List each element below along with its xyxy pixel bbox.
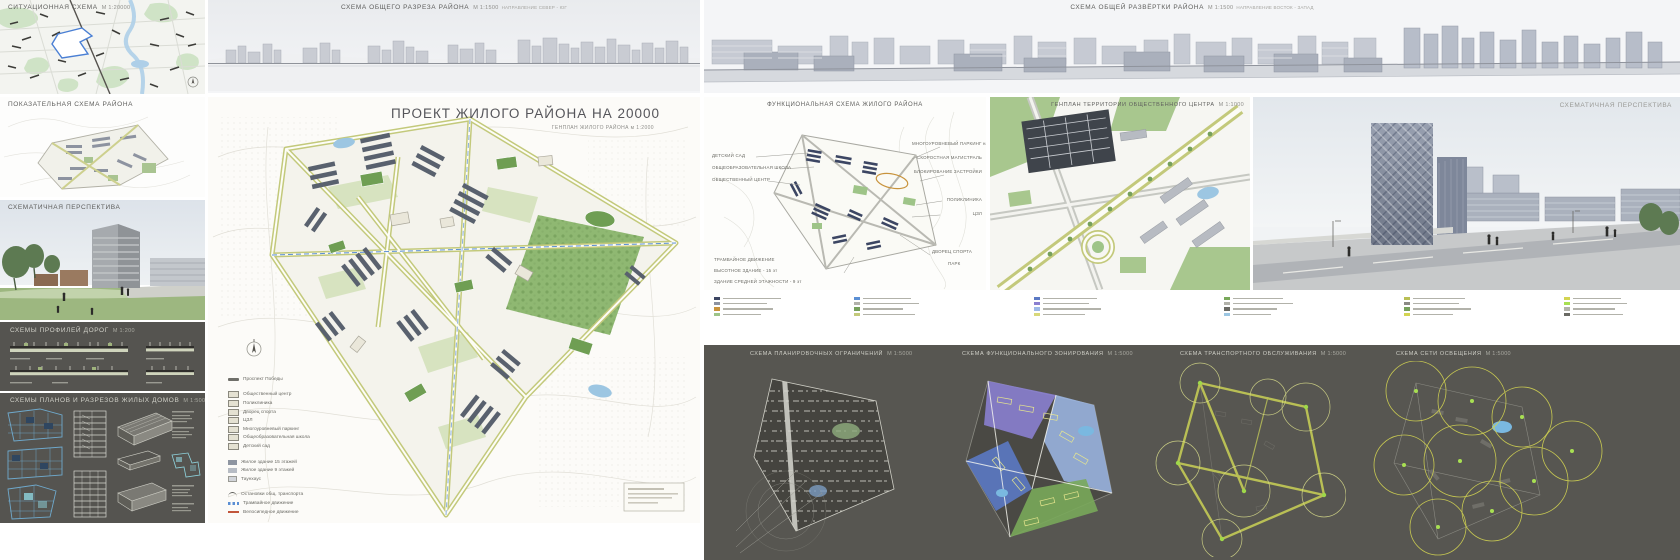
legend-item: Таунхаус bbox=[228, 475, 310, 484]
general-elevation-scale: м 1:1500 bbox=[1208, 5, 1233, 11]
public-center-scale: м 1:1000 bbox=[1219, 102, 1244, 108]
legend-group bbox=[854, 296, 919, 316]
road-chip bbox=[228, 378, 239, 382]
functional-label: ОБЩЕСТВЕННЫЙ ЦЕНТР bbox=[712, 177, 770, 182]
panel-title: СХЕМЫ ПРОФИЛЕЙ ДОРОГм 1:200 bbox=[10, 327, 135, 334]
zoning-graphic bbox=[936, 361, 1132, 557]
panel-title: СХЕМА ОБЩЕГО РАЗРЕЗА РАЙОНАм 1:1500напра… bbox=[208, 4, 700, 11]
presentation-board: СИТУАЦИОННАЯ СХЕМАм 1:20000 bbox=[0, 0, 1680, 560]
legend-item: Дворец спорта bbox=[228, 408, 310, 417]
house-plans-scale: м 1:500 bbox=[183, 398, 205, 404]
north-arrow-icon bbox=[247, 339, 261, 356]
residential-9-chip bbox=[228, 468, 237, 473]
legend-group bbox=[1224, 296, 1293, 316]
panel-title: СХЕМА ТРАНСПОРТНОГО ОБСЛУЖИВАНИЯм 1:5000 bbox=[1180, 351, 1346, 357]
legend-item: Жилое здание 9 этажей bbox=[228, 466, 310, 475]
functional-label: ДЕТСКИЙ САД bbox=[712, 153, 745, 158]
functional-label: ЦЗЛ bbox=[973, 211, 982, 216]
panel-perspective-2: СХЕМАТИЧНАЯ ПЕРСПЕКТИВА bbox=[1253, 97, 1680, 290]
public-building-chip bbox=[228, 391, 239, 398]
tram-line-chip bbox=[228, 502, 239, 504]
district-overview-graphic bbox=[0, 97, 205, 197]
legend-item: ЦЗЛ bbox=[228, 416, 310, 425]
panel-general-section: СХЕМА ОБЩЕГО РАЗРЕЗА РАЙОНАм 1:1500напра… bbox=[208, 0, 700, 93]
public-building-chip bbox=[228, 409, 239, 416]
legend-item: Многоуровневый паркинг bbox=[228, 425, 310, 434]
panel-title: ПОКАЗАТЕЛЬНАЯ СХЕМА РАЙОНА bbox=[8, 101, 133, 108]
legend-item: Жилое здание 15 этажей bbox=[228, 458, 310, 467]
legend-item: Велосипедное движение bbox=[228, 508, 310, 517]
panel-title: ФУНКЦИОНАЛЬНАЯ СХЕМА ЖИЛОГО РАЙОНА bbox=[704, 102, 986, 108]
public-building-chip bbox=[228, 434, 239, 441]
legend-group bbox=[1404, 296, 1471, 316]
district-overview-title: ПОКАЗАТЕЛЬНАЯ СХЕМА РАЙОНА bbox=[8, 101, 133, 108]
zoning-title: СХЕМА ФУНКЦИОНАЛЬНОГО ЗОНИРОВАНИЯ bbox=[962, 351, 1104, 357]
legend-item: Проспект Победы bbox=[228, 375, 310, 384]
general-section-scale: м 1:1500 bbox=[473, 5, 498, 11]
public-building-chip bbox=[228, 443, 239, 450]
public-building-chip bbox=[228, 400, 239, 407]
zoning-scale: м 1:5000 bbox=[1108, 351, 1133, 357]
title-stamp bbox=[624, 483, 684, 511]
panel-masterplan: ПРОЕКТ ЖИЛОГО РАЙОНА НА 20000 ГЕНПЛАН ЖИ… bbox=[208, 97, 700, 523]
masterplan-subtitle: ГЕНПЛАН ЖИЛОГО РАЙОНА м 1:2000 bbox=[552, 125, 654, 131]
masterplan-title: ПРОЕКТ ЖИЛОГО РАЙОНА НА 20000 bbox=[391, 106, 660, 121]
perspective-2-graphic bbox=[1253, 97, 1680, 290]
general-elevation-note: направление Восток - Запад bbox=[1236, 5, 1313, 10]
situational-map-graphic bbox=[0, 0, 205, 94]
legend-item: Общеобразовательная школа bbox=[228, 434, 310, 443]
legend-item: Трамвайное движение bbox=[228, 499, 310, 508]
panel-title: СХЕМАТИЧНАЯ ПЕРСПЕКТИВА bbox=[1560, 102, 1672, 109]
public-center-title: ГЕНПЛАН ТЕРРИТОРИИ ОБЩЕСТВЕННОГО ЦЕНТРА bbox=[1051, 102, 1215, 108]
situational-title: СИТУАЦИОННАЯ СХЕМА bbox=[8, 4, 98, 11]
public-center-plan-graphic bbox=[990, 97, 1250, 290]
tower-building bbox=[1371, 123, 1433, 245]
functional-label: ЗДАНИЕ СРЕДНЕЙ ЭТАЖНОСТИ - 9 эт bbox=[714, 279, 802, 284]
transport-graphic bbox=[1146, 361, 1346, 557]
analysis-band: СХЕМА ПЛАНИРОВОЧНЫХ ОГРАНИЧЕНИЙм 1:5000 bbox=[704, 345, 1680, 560]
general-section-note: направление Север - Юг bbox=[502, 5, 567, 10]
functional-label: ДВОРЕЦ СПОРТА bbox=[932, 249, 972, 254]
panel-title: СХЕМА ОБЩЕЙ РАЗВЁРТКИ РАЙОНАм 1:1500напр… bbox=[704, 4, 1680, 11]
general-section-graphic bbox=[208, 0, 700, 93]
house-plans-title: СХЕМЫ ПЛАНОВ И РАЗРЕЗОВ ЖИЛЫХ ДОМОВ bbox=[10, 397, 179, 404]
general-elevation-graphic bbox=[704, 0, 1680, 93]
panel-title: СИТУАЦИОННАЯ СХЕМАм 1:20000 bbox=[8, 4, 130, 11]
legend-item: Общественный центр bbox=[228, 391, 310, 400]
panel-title: СХЕМА ПЛАНИРОВОЧНЫХ ОГРАНИЧЕНИЙм 1:5000 bbox=[750, 351, 912, 357]
functional-label: СКОРОСТНАЯ МАГИСТРАЛЬ bbox=[917, 155, 982, 160]
lighting-scale: м 1:5000 bbox=[1486, 351, 1511, 357]
general-section-title: СХЕМА ОБЩЕГО РАЗРЕЗА РАЙОНА bbox=[341, 4, 469, 11]
panel-house-plans: СХЕМЫ ПЛАНОВ И РАЗРЕЗОВ ЖИЛЫХ ДОМОВм 1:5… bbox=[0, 393, 205, 523]
constraints-title: СХЕМА ПЛАНИРОВОЧНЫХ ОГРАНИЧЕНИЙ bbox=[750, 351, 883, 357]
legend-item: Остановки общ. транспорта bbox=[228, 491, 310, 500]
panel-perspective-1: СХЕМАТИЧНАЯ ПЕРСПЕКТИВА bbox=[0, 200, 205, 320]
panel-general-elevation: СХЕМА ОБЩЕЙ РАЗВЁРТКИ РАЙОНАм 1:1500напр… bbox=[704, 0, 1680, 93]
constraints-graphic bbox=[726, 361, 916, 557]
legend-item: Поликлиника bbox=[228, 399, 310, 408]
legend-strip bbox=[704, 294, 1680, 316]
road-profiles-scale: м 1:200 bbox=[113, 328, 135, 334]
functional-label: БЛОКИРОВАНИЕ ЗАСТРОЙКИ bbox=[914, 169, 982, 174]
panel-situational-map: СИТУАЦИОННАЯ СХЕМАм 1:20000 bbox=[0, 0, 205, 94]
public-building-chip bbox=[228, 426, 239, 433]
perspective-1-graphic bbox=[0, 200, 205, 320]
functional-label: ПАРК bbox=[948, 261, 960, 266]
panel-district-overview: ПОКАЗАТЕЛЬНАЯ СХЕМА РАЙОНА bbox=[0, 97, 205, 197]
house-plans-graphic bbox=[0, 393, 205, 523]
perspective-2-title: СХЕМАТИЧНАЯ ПЕРСПЕКТИВА bbox=[1560, 102, 1672, 109]
legend-group bbox=[714, 296, 781, 316]
functional-label: ОБЩЕОБРАЗОВАТЕЛЬНАЯ ШКОЛА bbox=[712, 165, 791, 170]
panel-public-center-plan: ГЕНПЛАН ТЕРРИТОРИИ ОБЩЕСТВЕННОГО ЦЕНТРАм… bbox=[990, 97, 1250, 290]
legend-group bbox=[1034, 296, 1101, 316]
general-elevation-title: СХЕМА ОБЩЕЙ РАЗВЁРТКИ РАЙОНА bbox=[1070, 4, 1204, 11]
masterplan-legend: Проспект Победы Общественный центр Полик… bbox=[228, 375, 310, 523]
lighting-title: СХЕМА СЕТИ ОСВЕЩЕНИЯ bbox=[1396, 351, 1482, 357]
transport-scale: м 1:5000 bbox=[1321, 351, 1346, 357]
panel-title: ГЕНПЛАН ТЕРРИТОРИИ ОБЩЕСТВЕННОГО ЦЕНТРАм… bbox=[1051, 102, 1244, 108]
public-building-chip bbox=[228, 417, 239, 424]
bike-line-chip bbox=[228, 511, 239, 513]
townhouse-chip bbox=[228, 476, 237, 482]
perspective-1-title: СХЕМАТИЧНАЯ ПЕРСПЕКТИВА bbox=[8, 204, 120, 211]
functional-label: МНОГОУРОВНЕВЫЙ ПАРКИНГ на 800 мест bbox=[912, 141, 982, 146]
constraints-scale: м 1:5000 bbox=[887, 351, 912, 357]
situational-scale: м 1:20000 bbox=[102, 5, 131, 11]
lighting-graphic bbox=[1352, 361, 1612, 557]
residential-15-chip bbox=[228, 460, 237, 465]
panel-functional-scheme: ФУНКЦИОНАЛЬНАЯ СХЕМА ЖИЛОГО РАЙОНА bbox=[704, 97, 986, 290]
functional-label: ПОЛИКЛИНИКА bbox=[947, 197, 982, 202]
legend-item: Детский сад bbox=[228, 442, 310, 451]
transit-stop-chip bbox=[228, 492, 237, 497]
functional-label: ТРАМВАЙНОЕ ДВИЖЕНИЕ bbox=[714, 257, 775, 262]
road-profiles-title: СХЕМЫ ПРОФИЛЕЙ ДОРОГ bbox=[10, 327, 109, 334]
functional-label: ВЫСОТНОЕ ЗДАНИЕ - 15 эт bbox=[714, 268, 777, 273]
panel-title: СХЕМА СЕТИ ОСВЕЩЕНИЯм 1:5000 bbox=[1396, 351, 1511, 357]
panel-road-profiles: СХЕМЫ ПРОФИЛЕЙ ДОРОГм 1:200 bbox=[0, 322, 205, 391]
panel-title: СХЕМЫ ПЛАНОВ И РАЗРЕЗОВ ЖИЛЫХ ДОМОВм 1:5… bbox=[10, 397, 205, 404]
functional-title: ФУНКЦИОНАЛЬНАЯ СХЕМА ЖИЛОГО РАЙОНА bbox=[767, 102, 923, 108]
transport-title: СХЕМА ТРАНСПОРТНОГО ОБСЛУЖИВАНИЯ bbox=[1180, 351, 1317, 357]
legend-group bbox=[1564, 296, 1627, 316]
panel-title: СХЕМА ФУНКЦИОНАЛЬНОГО ЗОНИРОВАНИЯм 1:500… bbox=[962, 351, 1133, 357]
panel-title: СХЕМАТИЧНАЯ ПЕРСПЕКТИВА bbox=[8, 204, 120, 211]
